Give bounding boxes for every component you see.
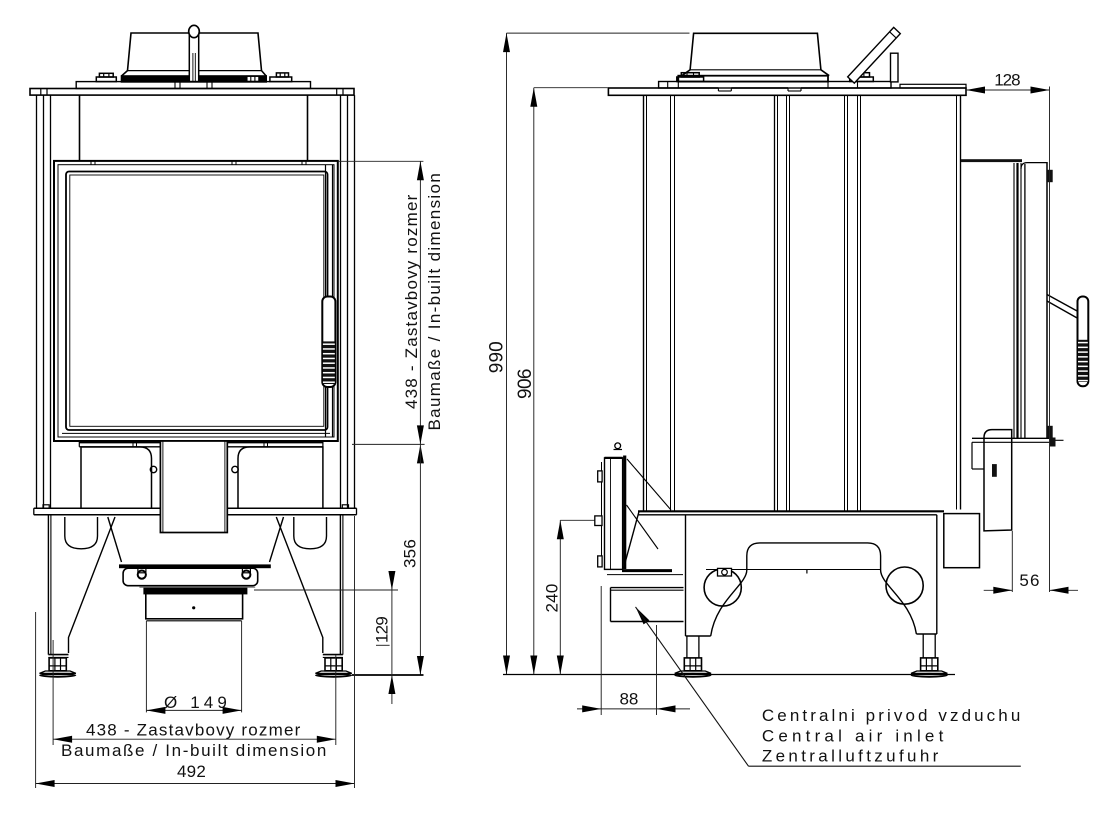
svg-text:Baumaße / In-built dimension: Baumaße / In-built dimension bbox=[61, 741, 328, 760]
svg-text:88: 88 bbox=[620, 690, 640, 709]
svg-text:Zentralluftzufuhr: Zentralluftzufuhr bbox=[762, 747, 941, 766]
svg-text:240: 240 bbox=[542, 583, 561, 613]
svg-text:438 - Zastavbovy rozmer: 438 - Zastavbovy rozmer bbox=[86, 720, 302, 739]
svg-text:128: 128 bbox=[994, 71, 1022, 90]
svg-text:356: 356 bbox=[401, 538, 420, 568]
svg-text:Baumaße / In-built dimension: Baumaße / In-built dimension bbox=[425, 172, 444, 431]
svg-text:Centralni privod vzduchu: Centralni privod vzduchu bbox=[762, 706, 1023, 725]
svg-text:492: 492 bbox=[177, 762, 207, 781]
svg-text:56: 56 bbox=[1019, 571, 1040, 590]
svg-text:438 - Zastavbovy rozmer: 438 - Zastavbovy rozmer bbox=[402, 193, 421, 409]
svg-text:129: 129 bbox=[373, 615, 392, 643]
svg-text:990: 990 bbox=[487, 340, 508, 374]
svg-text:906: 906 bbox=[515, 367, 536, 399]
svg-text:Ø 149: Ø 149 bbox=[164, 693, 228, 712]
